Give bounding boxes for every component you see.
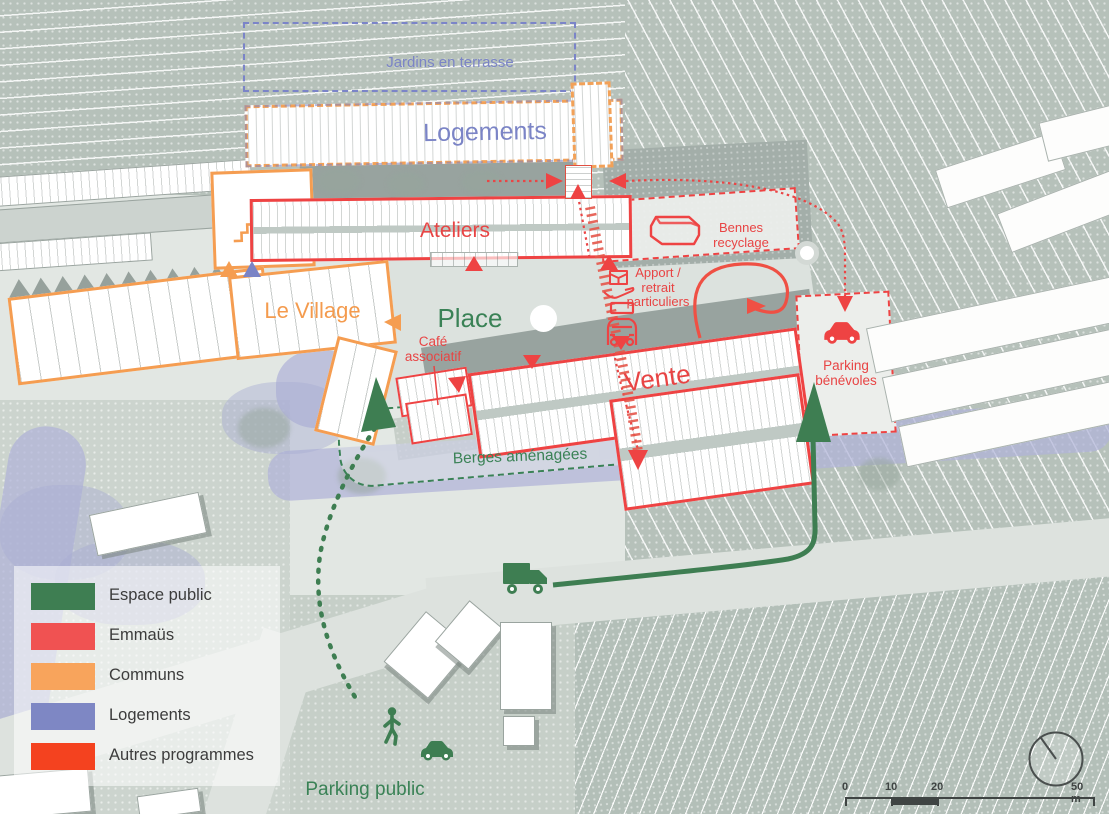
- label-logements: Logements: [375, 116, 595, 148]
- legend-swatch-autres: [31, 743, 95, 770]
- label-apport-line3: particuliers: [627, 294, 690, 309]
- tree: [388, 172, 424, 196]
- label-bennes-line2: recyclage: [713, 235, 769, 250]
- tree: [462, 170, 502, 194]
- legend-swatch-logements: [31, 703, 95, 730]
- scale-tick-20: [937, 797, 939, 806]
- scale-label-0: 0: [842, 781, 848, 793]
- label-parking-benevoles: Parking bénévoles: [800, 358, 892, 388]
- label-cafe-line1: Café: [419, 334, 448, 349]
- label-apport: Apport / retrait particuliers: [612, 266, 704, 310]
- silo-circle: [795, 241, 819, 265]
- legend-swatch-espace-public: [31, 583, 95, 610]
- public-car-icon: [418, 736, 456, 762]
- label-jardins: Jardins en terrasse: [340, 55, 560, 72]
- label-parking-benevoles-line1: Parking: [823, 358, 869, 373]
- north-indicator-icon: [1027, 730, 1085, 788]
- legend-label-espace-public: Espace public: [109, 586, 212, 605]
- legend-label-communs: Communs: [109, 666, 184, 685]
- label-parking-public: Parking public: [295, 779, 435, 800]
- label-cafe-line2: associatif: [405, 349, 461, 364]
- recycling-bin-icon: [648, 214, 702, 248]
- house: [500, 622, 552, 710]
- label-bennes: Bennes recyclage: [700, 221, 782, 250]
- scale-tick-0: [845, 797, 847, 806]
- label-bennes-line1: Bennes: [719, 220, 763, 235]
- site-plan: Jardins en terrasse Logements Ateliers L…: [0, 0, 1109, 814]
- label-apport-line2: retrait: [641, 280, 674, 295]
- legend-label-logements: Logements: [109, 706, 191, 725]
- legend-label-emmaus: Emmaüs: [109, 626, 174, 645]
- pedestrian-icon: [380, 706, 404, 748]
- tree: [238, 408, 290, 448]
- house: [503, 716, 535, 746]
- label-ateliers: Ateliers: [375, 219, 535, 243]
- scale-bar: 0 10 20 50 m: [845, 797, 1095, 809]
- legend-swatch-emmaus: [31, 623, 95, 650]
- legend-panel: Espace public Emmaüs Communs Logements A…: [14, 566, 280, 786]
- label-cafe: Café associatif: [388, 334, 478, 364]
- tree: [858, 458, 900, 490]
- scale-label-10: 10: [885, 781, 897, 793]
- legend-label-autres: Autres programmes: [109, 746, 254, 765]
- label-place: Place: [415, 304, 525, 333]
- label-apport-line1: Apport /: [635, 265, 681, 280]
- delivery-truck-icon: [503, 560, 549, 596]
- canopy-structure: [430, 252, 518, 267]
- label-village: Le Village: [240, 299, 385, 324]
- label-parking-benevoles-line2: bénévoles: [815, 373, 877, 388]
- tree: [318, 168, 360, 194]
- passage-gap: [565, 165, 592, 199]
- place-tree-circle: [530, 305, 557, 332]
- scale-label-20: 20: [931, 781, 943, 793]
- legend-swatch-communs: [31, 663, 95, 690]
- scale-fill-segment: [891, 799, 937, 805]
- volunteer-car-icon: [821, 316, 863, 346]
